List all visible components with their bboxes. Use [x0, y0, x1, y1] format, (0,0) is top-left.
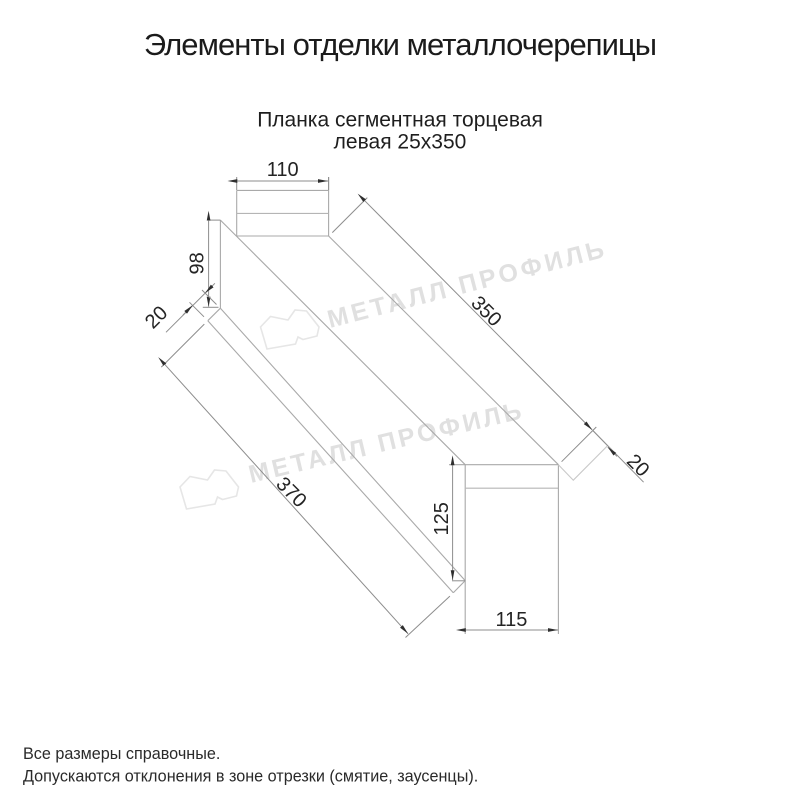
svg-text:110: 110: [267, 159, 299, 181]
svg-text:левая 25x350: левая 25x350: [334, 131, 467, 154]
svg-text:20: 20: [141, 302, 172, 333]
svg-text:Планка сегментная торцевая: Планка сегментная торцевая: [257, 109, 543, 132]
svg-text:Допускаются отклонения в зоне: Допускаются отклонения в зоне отрезки (с…: [23, 768, 478, 786]
svg-text:98: 98: [186, 252, 208, 274]
svg-text:125: 125: [431, 502, 453, 535]
svg-text:115: 115: [496, 609, 528, 631]
svg-text:Все размеры справочные.: Все размеры справочные.: [23, 745, 220, 763]
svg-text:20: 20: [622, 450, 653, 481]
svg-text:Элементы отделки металлочерепи: Элементы отделки металлочерепицы: [144, 27, 656, 62]
svg-text:МЕТАЛЛ ПРОФИЛЬ: МЕТАЛЛ ПРОФИЛЬ: [324, 235, 610, 334]
svg-text:350: 350: [466, 292, 505, 331]
